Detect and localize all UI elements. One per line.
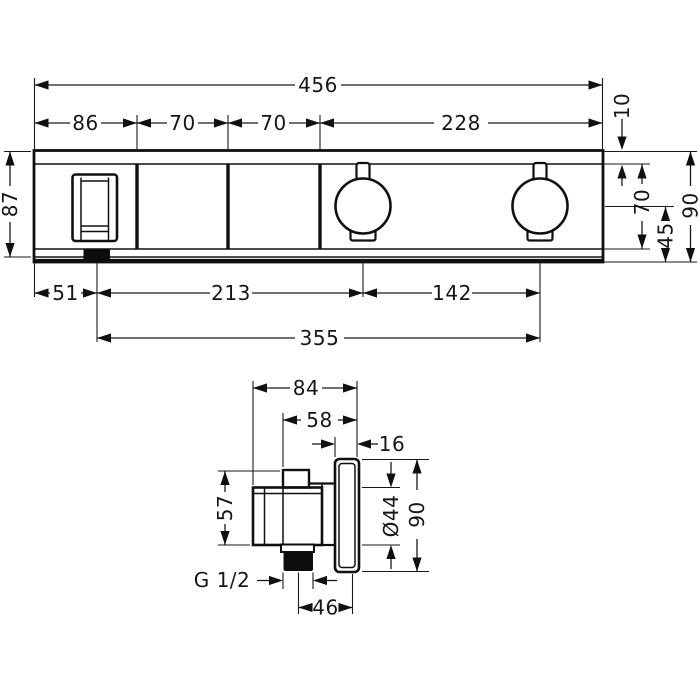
dim-plate-depth: 16: [312, 432, 405, 456]
dim-depth-total: 84: [253, 376, 357, 400]
dim-label: 16: [379, 432, 405, 456]
dim-plate-edge: 10: [610, 93, 634, 186]
dim-label: 70: [169, 111, 195, 135]
dim-total-width: 456: [35, 73, 603, 97]
collar: [281, 545, 314, 553]
thread-label: G 1/2: [194, 568, 251, 592]
thread-nipple: [284, 552, 314, 571]
dim-label: 70: [630, 189, 654, 215]
dim-label: 87: [0, 191, 22, 217]
dim-height-inner: 70: [630, 165, 654, 249]
dim-handle-to-knob1: 213: [97, 281, 363, 305]
dim-knob1-to-knob2: 142: [363, 281, 540, 305]
dim-seg1: 86: [35, 111, 138, 135]
dim-label: 57: [213, 495, 237, 521]
dim-label: 90: [679, 192, 700, 218]
dim-label: 51: [52, 281, 78, 305]
dim-bottom-offset: 51: [35, 281, 98, 305]
knob-2: [513, 163, 568, 241]
knob-1: [336, 163, 391, 241]
dim-depth-body: 58: [283, 408, 357, 432]
dim-seg3: 70: [228, 111, 320, 135]
dim-thread: G 1/2: [194, 568, 337, 592]
dim-knob-diameter: Ø44: [362, 462, 403, 569]
escutcheon-plate: [335, 459, 359, 572]
dim-body-height: 57: [213, 471, 280, 545]
dim-label: 46: [312, 596, 338, 620]
dim-label: 456: [298, 73, 338, 97]
dim-handle-to-knob2: 355: [97, 326, 540, 350]
dim-label: 213: [211, 281, 251, 305]
dim-label: 10: [610, 93, 634, 119]
technical-drawing: 456 86 70 70 228 10: [0, 0, 700, 700]
dim-label: 228: [441, 111, 481, 135]
dim-label: 58: [306, 408, 332, 432]
dim-knob-to-bottom: 45: [654, 207, 678, 262]
dim-seg4: 228: [320, 111, 603, 135]
dim-label: 84: [293, 376, 319, 400]
dim-height-body: 87: [0, 152, 31, 258]
body-block: [253, 488, 322, 546]
select-handle: [73, 175, 118, 262]
dim-label: 70: [260, 111, 286, 135]
dim-label: 90: [405, 501, 429, 527]
dim-label: 86: [72, 111, 98, 135]
side-view: 84 58 16 57 Ø44: [194, 376, 429, 620]
dim-label: 142: [432, 281, 472, 305]
valve-body: [253, 470, 335, 571]
front-view: 456 86 70 70 228 10: [0, 73, 700, 350]
dim-label: 355: [300, 326, 340, 350]
dim-height-total: 90: [679, 152, 700, 263]
dim-seg2: 70: [137, 111, 228, 135]
dim-label: 45: [654, 222, 678, 248]
handle-foot: [84, 249, 111, 262]
dim-label: Ø44: [379, 495, 403, 538]
body-step: [283, 470, 309, 488]
